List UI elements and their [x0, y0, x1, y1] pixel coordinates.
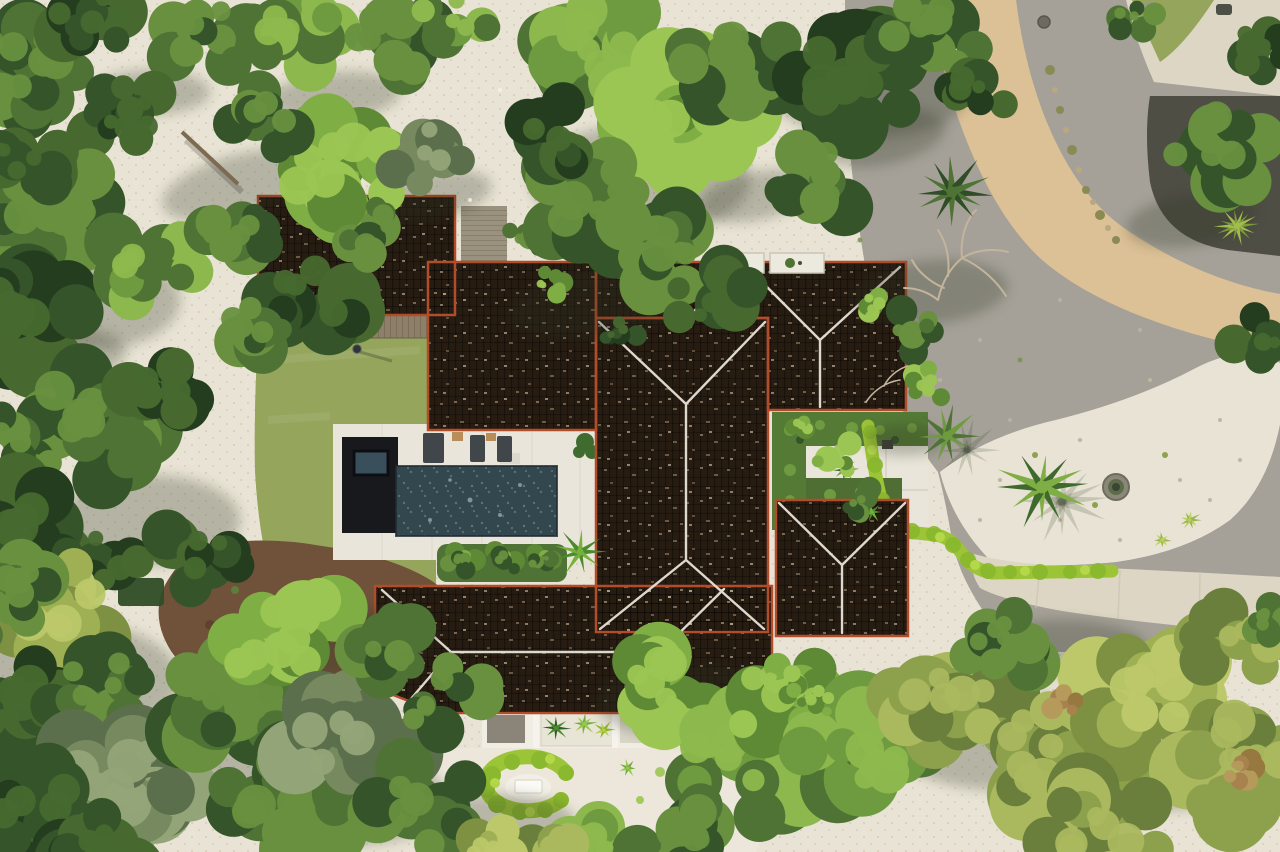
canopy-highlight	[693, 308, 707, 322]
canopy-highlight	[893, 324, 905, 336]
canopy-clump	[48, 284, 103, 339]
canopy-highlight	[109, 6, 130, 27]
canopy-highlight	[1217, 141, 1246, 170]
palm-crown	[1189, 519, 1192, 522]
canopy-highlight	[703, 271, 716, 284]
canopy-clump	[444, 760, 486, 802]
canopy-highlight	[6, 568, 31, 593]
canopy-clump	[990, 90, 1018, 118]
canopy-highlight	[651, 645, 687, 681]
canopy-clump	[553, 282, 565, 294]
canopy-clump	[786, 683, 801, 698]
canopy-highlight	[882, 746, 908, 772]
canopy-highlight	[1089, 810, 1119, 840]
canopy-highlight	[527, 118, 542, 133]
palm-crown	[1036, 481, 1049, 494]
canopy-clump	[124, 665, 155, 696]
canopy-clump	[822, 692, 834, 704]
canopy-highlight	[236, 785, 276, 825]
canopy-clump	[822, 707, 832, 717]
canopy-highlight	[770, 674, 777, 681]
canopy-clump	[727, 267, 768, 308]
garden-lamp	[353, 345, 361, 353]
pool-area	[333, 424, 609, 582]
canopy-highlight	[820, 185, 839, 204]
canopy-highlight	[272, 109, 296, 133]
canopy-clump	[407, 170, 433, 196]
canopy-highlight	[263, 5, 288, 30]
canopy-highlight	[402, 788, 426, 812]
canopy-clump	[783, 665, 800, 682]
canopy-highlight	[0, 32, 28, 61]
palm-crown	[603, 729, 606, 732]
canopy-clump	[1041, 698, 1062, 719]
canopy-highlight	[1256, 39, 1271, 54]
canopy-highlight	[73, 685, 93, 705]
canopy-highlight	[627, 665, 647, 685]
canopy-clump	[765, 176, 794, 205]
palm-crown	[946, 186, 957, 197]
canopy-highlight	[62, 398, 102, 438]
canopy-highlight	[682, 825, 708, 851]
canopy-highlight	[5, 786, 36, 817]
canopy-highlight	[72, 200, 96, 224]
canopy-highlight	[1201, 101, 1232, 132]
canopy-highlight	[104, 115, 118, 129]
canopy-clump	[221, 47, 247, 73]
canopy-highlight	[554, 181, 593, 220]
wall-opening	[487, 715, 525, 743]
canopy-clump	[1224, 770, 1237, 783]
canopy-highlight	[184, 557, 207, 580]
canopy-highlight	[1163, 142, 1187, 166]
canopy-highlight	[211, 1, 231, 21]
palm-crown	[627, 767, 630, 770]
canopy-clump	[729, 710, 757, 738]
canopy-highlight	[188, 531, 208, 551]
canopy-clump	[312, 3, 342, 33]
canopy-clump	[167, 264, 194, 291]
canopy-highlight	[393, 655, 409, 671]
canopy-highlight	[429, 149, 451, 171]
canopy-clump	[663, 301, 695, 333]
canopy-highlight	[498, 550, 508, 560]
side-table	[486, 433, 496, 441]
canopy-clump	[376, 602, 412, 638]
palm-crown	[582, 722, 586, 726]
canopy-clump	[509, 563, 520, 574]
canopy-highlight	[1231, 761, 1239, 769]
canopy-highlight	[263, 631, 300, 668]
courtyard-plant	[785, 258, 795, 268]
canopy-highlight	[107, 555, 132, 580]
canopy-highlight	[260, 595, 293, 628]
pool-water-texture	[396, 466, 557, 536]
canopy-highlight	[340, 721, 375, 756]
canopy-highlight	[865, 311, 875, 321]
canopy-clump	[834, 457, 845, 468]
canopy-highlight	[540, 282, 547, 289]
canopy-highlight	[300, 255, 331, 286]
canopy-highlight	[972, 80, 985, 93]
canopy-highlight	[613, 316, 625, 328]
canopy-highlight	[124, 791, 147, 814]
canopy-highlight	[251, 321, 273, 343]
canopy-highlight	[1114, 8, 1125, 19]
canopy-highlight	[373, 204, 394, 225]
canopy-highlight	[655, 688, 676, 709]
canopy-highlight	[849, 499, 857, 507]
canopy-highlight	[7, 74, 31, 98]
palm-crown	[554, 726, 558, 730]
canopy-highlight	[857, 495, 866, 504]
canopy-highlight	[806, 694, 817, 705]
canopy-highlight	[825, 446, 833, 454]
canopy-highlight	[1129, 11, 1139, 21]
canopy-highlight	[115, 115, 141, 141]
canopy-clump	[103, 27, 129, 53]
canopy-highlight	[417, 696, 435, 714]
canopy-highlight	[421, 122, 437, 138]
canopy-clump	[1186, 784, 1224, 822]
canopy-highlight	[708, 36, 741, 69]
canopy-highlight	[1254, 333, 1272, 351]
canopy-highlight	[105, 677, 122, 694]
canopy-clump	[201, 712, 236, 747]
palm-crown	[1234, 223, 1240, 229]
canopy-clump	[111, 75, 135, 99]
canopy-clump	[668, 44, 709, 85]
canopy-highlight	[334, 123, 374, 163]
canopy-highlight	[189, 681, 209, 701]
canopy-clump	[412, 0, 435, 22]
white-bench	[515, 780, 542, 793]
canopy-clump	[1047, 787, 1082, 822]
canopy-highlight	[307, 160, 345, 198]
canopy-highlight	[26, 150, 41, 165]
canopy-highlight	[834, 444, 847, 457]
canopy-highlight	[907, 336, 918, 347]
canopy-highlight	[930, 683, 961, 714]
canopy-highlight	[203, 225, 222, 244]
canopy-highlight	[292, 712, 328, 748]
canopy-clump	[1143, 3, 1166, 26]
canopy-clump	[1192, 633, 1217, 658]
canopy-clump	[473, 14, 500, 41]
canopy-highlight	[546, 126, 572, 152]
canopy-highlight	[878, 20, 909, 51]
canopy-clump	[1067, 705, 1078, 716]
pendant-light	[798, 261, 802, 265]
canopy-highlight	[319, 298, 348, 327]
canopy-highlight	[160, 382, 181, 403]
canopy-highlight	[365, 641, 382, 658]
courtyard-lightwell	[770, 253, 824, 273]
manhole-cover	[1038, 16, 1050, 28]
canopy-highlight	[1159, 702, 1189, 732]
canopy-clump	[1108, 17, 1132, 41]
canopy-highlight	[577, 38, 600, 61]
canopy-highlight	[178, 39, 204, 65]
canopy-highlight	[454, 553, 463, 562]
canopy-clump	[919, 319, 934, 334]
spa-tub	[354, 451, 388, 475]
canopy-highlight	[910, 17, 931, 38]
canopy-highlight	[231, 316, 253, 338]
sun-lounger	[423, 433, 444, 463]
canopy-highlight	[243, 99, 267, 123]
canopy-clump	[979, 648, 1010, 679]
canopy-clump	[541, 82, 585, 126]
canopy-highlight	[1238, 26, 1254, 42]
canopy-highlight	[344, 23, 372, 51]
canopy-clump	[147, 767, 195, 815]
wall-column	[533, 710, 539, 748]
side-table	[452, 432, 463, 441]
canopy-highlight	[113, 257, 130, 274]
canopy-clump	[668, 277, 690, 299]
canopy-highlight	[970, 633, 988, 651]
canopy-highlight	[971, 679, 994, 702]
canopy-clump	[1119, 777, 1172, 830]
canopy-highlight	[1051, 700, 1059, 708]
canopy-clump	[680, 794, 717, 831]
canopy-highlight	[7, 161, 26, 180]
round-planter-center	[1112, 483, 1120, 491]
canopy-clump	[107, 439, 146, 478]
canopy-clump	[461, 562, 470, 571]
canopy-highlight	[815, 142, 838, 165]
canopy-highlight	[1038, 734, 1063, 759]
canopy-highlight	[239, 215, 260, 236]
canopy-clump	[864, 294, 873, 303]
canopy-highlight	[824, 58, 868, 102]
palm-crown	[1161, 539, 1164, 542]
canopy-highlight	[996, 616, 1012, 632]
canopy-highlight	[557, 835, 572, 850]
canopy-highlight	[81, 10, 105, 34]
lawn-shrub	[1216, 4, 1232, 15]
mow-stripe	[268, 416, 330, 420]
canopy-highlight	[1007, 751, 1038, 782]
canopy-highlight	[797, 421, 805, 429]
canopy-highlight	[608, 331, 615, 338]
canopy-highlight	[88, 531, 103, 546]
aerial-photo	[0, 0, 1280, 852]
canopy-highlight	[1056, 695, 1062, 701]
canopy-clump	[1235, 51, 1260, 76]
canopy-clump	[779, 727, 828, 776]
canopy-highlight	[715, 744, 742, 771]
sun-lounger	[497, 436, 512, 462]
canopy-clump	[881, 88, 920, 127]
canopy-clump	[397, 51, 431, 85]
canopy-clump	[261, 131, 293, 163]
canopy-highlight	[389, 6, 403, 20]
canopy-highlight	[1256, 609, 1269, 622]
canopy-highlight	[544, 556, 549, 561]
canopy-clump	[797, 697, 807, 707]
sun-lounger	[470, 435, 485, 462]
canopy-clump	[270, 319, 292, 341]
canopy-clump	[529, 560, 537, 568]
canopy-highlight	[916, 380, 927, 391]
canopy-highlight	[212, 535, 227, 550]
canopy-clump	[538, 266, 551, 279]
canopy-highlight	[273, 270, 297, 294]
canopy-highlight	[355, 233, 378, 256]
canopy-highlight	[431, 668, 454, 691]
canopy-highlight	[309, 749, 335, 775]
canopy-highlight	[642, 235, 678, 271]
canopy-highlight	[63, 661, 83, 681]
canopy-highlight	[1213, 700, 1256, 743]
canopy-highlight	[1011, 709, 1035, 733]
canopy-highlight	[48, 2, 70, 24]
canopy-highlight	[108, 653, 130, 675]
canopy-highlight	[899, 678, 932, 711]
canopy-highlight	[14, 503, 38, 527]
canopy-highlight	[75, 578, 106, 609]
tree-shadow	[865, 424, 945, 456]
palm-crown	[870, 510, 873, 513]
canopy-highlight	[702, 292, 723, 313]
canopy-highlight	[742, 769, 764, 791]
canopy-highlight	[859, 758, 880, 779]
palm-crown	[576, 548, 583, 555]
canopy-highlight	[950, 66, 974, 90]
canopy-clump	[148, 238, 175, 265]
canopy-clump	[812, 455, 824, 467]
palm-crown	[942, 431, 951, 440]
canopy-highlight	[137, 96, 152, 111]
canopy-highlight	[565, 9, 599, 43]
canopy-highlight	[680, 731, 712, 763]
canopy-highlight	[133, 367, 158, 392]
canopy-highlight	[997, 631, 1012, 646]
aerial-photo-stage	[0, 0, 1280, 852]
canopy-highlight	[457, 19, 474, 36]
canopy-highlight	[10, 432, 31, 453]
canopy-highlight	[178, 16, 195, 33]
